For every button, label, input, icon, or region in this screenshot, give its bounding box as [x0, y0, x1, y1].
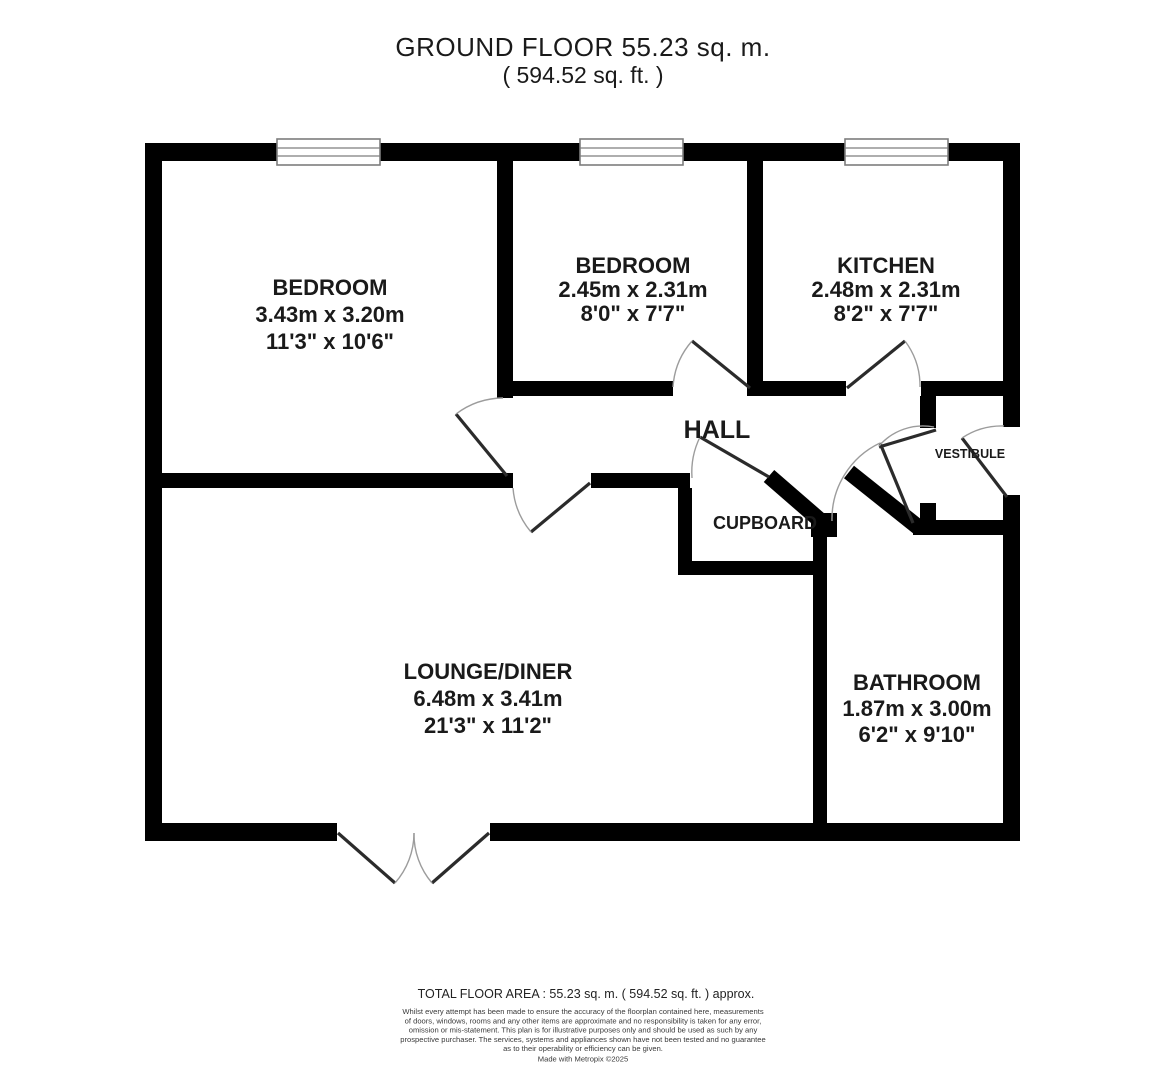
- bedroom2-name: BEDROOM: [576, 253, 691, 278]
- kitchen-imperial: 8'2" x 7'7": [834, 301, 939, 326]
- label-kitchen: KITCHEN 2.48m x 2.31m 8'2" x 7'7": [811, 253, 960, 326]
- bedroom2-metric: 2.45m x 2.31m: [558, 277, 707, 302]
- kitchen-metric: 2.48m x 2.31m: [811, 277, 960, 302]
- bedroom1-imperial: 11'3" x 10'6": [266, 329, 394, 354]
- doors: [338, 341, 1007, 883]
- bedroom1-metric: 3.43m x 3.20m: [255, 302, 404, 327]
- vestibule-angled-wall: [849, 472, 918, 527]
- door-french-right: [414, 833, 489, 883]
- bedroom2-imperial: 8'0" x 7'7": [581, 301, 686, 326]
- window-bedroom1: [277, 139, 380, 165]
- kitchen-name: KITCHEN: [837, 253, 935, 278]
- label-bedroom1: BEDROOM 3.43m x 3.20m 11'3" x 10'6": [255, 275, 404, 354]
- door-bedroom1: [456, 398, 507, 476]
- door-front-entrance: [962, 426, 1007, 497]
- bathroom-name: BATHROOM: [853, 670, 981, 695]
- disclaimer-line: Whilst every attempt has been made to en…: [402, 1007, 764, 1016]
- vestibule-name: VESTIBULE: [935, 447, 1005, 461]
- footer: TOTAL FLOOR AREA : 55.23 sq. m. ( 594.52…: [400, 987, 765, 1064]
- door-vestibule: [879, 426, 936, 447]
- page-title: GROUND FLOOR 55.23 sq. m.: [395, 32, 770, 62]
- label-bathroom: BATHROOM 1.87m x 3.00m 6'2" x 9'10": [842, 670, 991, 747]
- label-bedroom2: BEDROOM 2.45m x 2.31m 8'0" x 7'7": [558, 253, 707, 326]
- disclaimer-line: as to their operability or efficiency ca…: [503, 1044, 663, 1053]
- lounge-name: LOUNGE/DINER: [404, 659, 573, 684]
- windows: [277, 139, 948, 165]
- bathroom-metric: 1.87m x 3.00m: [842, 696, 991, 721]
- door-french-left: [338, 833, 414, 883]
- disclaimer-line: omission or mis-statement. This plan is …: [409, 1026, 758, 1035]
- door-lounge: [513, 483, 590, 532]
- disclaimer-line: prospective purchaser. The services, sys…: [400, 1035, 765, 1044]
- bathroom-imperial: 6'2" x 9'10": [859, 722, 976, 747]
- window-bedroom2: [580, 139, 683, 165]
- floorplan-svg: GROUND FLOOR 55.23 sq. m. ( 594.52 sq. f…: [0, 0, 1167, 1080]
- label-lounge: LOUNGE/DINER 6.48m x 3.41m 21'3" x 11'2": [404, 659, 573, 738]
- hall-name: HALL: [684, 416, 751, 444]
- floorplan-page: GROUND FLOOR 55.23 sq. m. ( 594.52 sq. f…: [0, 0, 1167, 1080]
- total-floor-area: TOTAL FLOOR AREA : 55.23 sq. m. ( 594.52…: [418, 987, 755, 1001]
- lounge-imperial: 21'3" x 11'2": [424, 713, 552, 738]
- window-kitchen: [845, 139, 948, 165]
- disclaimer-line: of doors, windows, rooms and any other i…: [405, 1016, 762, 1025]
- door-kitchen: [847, 341, 920, 388]
- page-subtitle: ( 594.52 sq. ft. ): [502, 62, 663, 88]
- bedroom1-name: BEDROOM: [273, 275, 388, 300]
- lounge-metric: 6.48m x 3.41m: [413, 686, 562, 711]
- cupboard-name: CUPBOARD: [713, 513, 817, 533]
- metropix-credit: Made with Metropix ©2025: [538, 1055, 628, 1064]
- door-bedroom2: [673, 341, 750, 388]
